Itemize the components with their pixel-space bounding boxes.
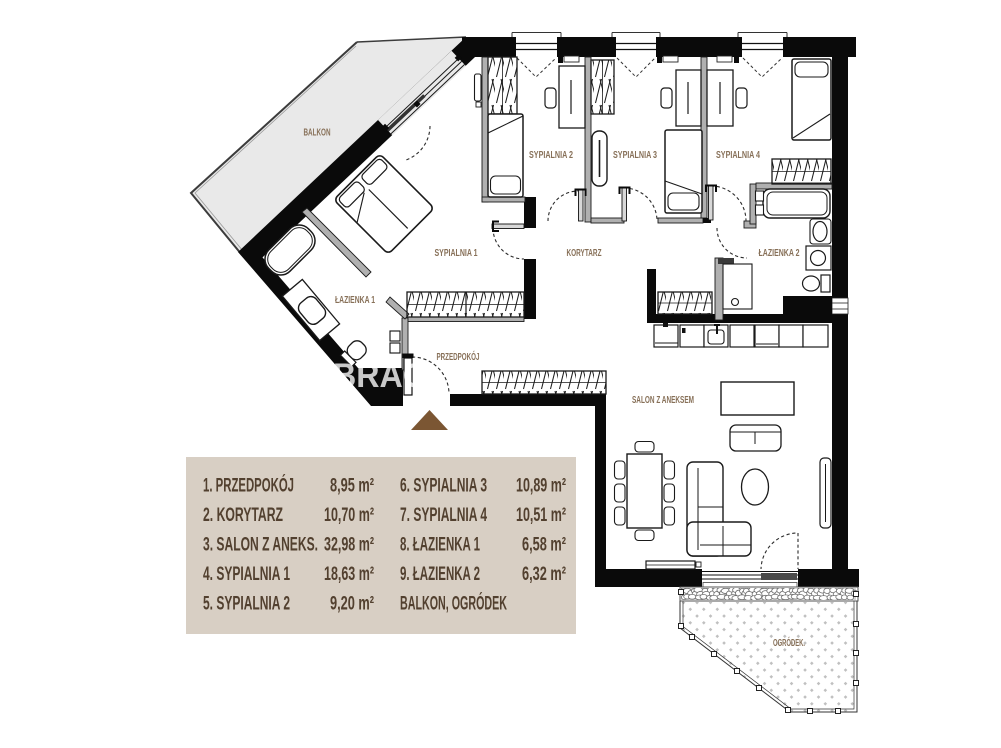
svg-text:BRAC: BRAC [333, 357, 426, 395]
svg-text:SYPIALNIA 1: SYPIALNIA 1 [435, 248, 478, 259]
svg-text:10,89 m²: 10,89 m² [516, 475, 566, 497]
svg-text:ŁAZIENKA 2: ŁAZIENKA 2 [759, 248, 800, 259]
svg-text:PRZEDPOKÓJ: PRZEDPOKÓJ [437, 350, 480, 363]
svg-text:SYPIALNIA 3: SYPIALNIA 3 [613, 150, 657, 161]
svg-text:ŁAZIENKA 1: ŁAZIENKA 1 [335, 295, 375, 306]
svg-text:3. SALON Z ANEKS.: 3. SALON Z ANEKS. [203, 534, 318, 556]
svg-text:8,95 m²: 8,95 m² [330, 475, 374, 497]
svg-text:2. KORYTARZ: 2. KORYTARZ [203, 504, 283, 526]
svg-text:KORYTARZ: KORYTARZ [567, 248, 602, 259]
svg-text:7. SYPIALNIA 4: 7. SYPIALNIA 4 [400, 504, 487, 526]
svg-text:1. PRZEDPOKÓJ: 1. PRZEDPOKÓJ [203, 473, 294, 497]
svg-text:6. SYPIALNIA 3: 6. SYPIALNIA 3 [400, 475, 487, 497]
svg-text:10,51 m²: 10,51 m² [516, 504, 566, 526]
svg-text:SYPIALNIA 2: SYPIALNIA 2 [529, 150, 573, 161]
svg-text:18,63 m²: 18,63 m² [324, 563, 374, 585]
svg-text:6,58 m²: 6,58 m² [522, 534, 566, 556]
svg-text:9,20 m²: 9,20 m² [330, 593, 374, 615]
svg-text:BALKON, OGRÓDEK: BALKON, OGRÓDEK [400, 591, 507, 615]
svg-text:10,70 m²: 10,70 m² [324, 504, 374, 526]
svg-text:9. ŁAZIENKA 2: 9. ŁAZIENKA 2 [400, 563, 480, 585]
svg-text:5. SYPIALNIA 2: 5. SYPIALNIA 2 [203, 593, 290, 615]
svg-text:SYPIALNIA 4: SYPIALNIA 4 [716, 150, 760, 161]
svg-text:8. ŁAZIENKA 1: 8. ŁAZIENKA 1 [400, 534, 480, 556]
svg-text:OGRÓDEK.: OGRÓDEK. [773, 636, 805, 649]
svg-text:SALON Z ANEKSEM: SALON Z ANEKSEM [632, 395, 694, 406]
svg-text:32,98 m²: 32,98 m² [324, 534, 374, 556]
svg-text:4. SYPIALNIA 1: 4. SYPIALNIA 1 [203, 563, 290, 585]
svg-text:BALKON: BALKON [304, 128, 331, 139]
svg-text:6,32 m²: 6,32 m² [522, 563, 566, 585]
